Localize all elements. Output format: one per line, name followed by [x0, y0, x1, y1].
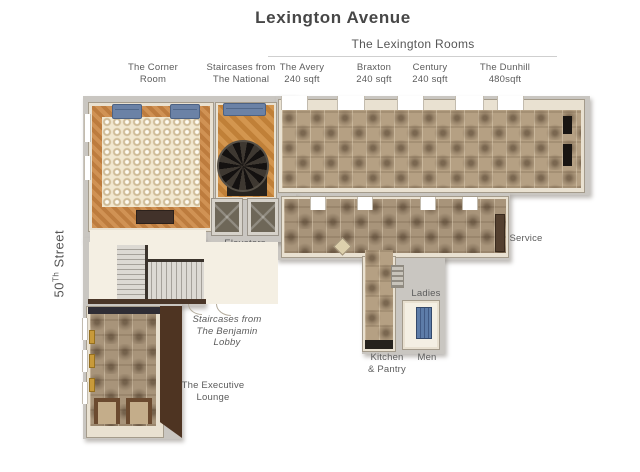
lexington-rooms-carpet: [282, 110, 581, 188]
door-opening: [563, 116, 572, 134]
booth-seat: [94, 398, 120, 424]
subtitle-underline: [268, 56, 557, 57]
executive-lounge-top-wall: [88, 307, 160, 314]
door-bay: [357, 197, 373, 210]
window-bay: [281, 96, 308, 110]
lounge-chair: [89, 330, 95, 344]
window-bay: [455, 96, 484, 110]
window-bay: [82, 350, 88, 372]
lobby-floor: [205, 242, 278, 304]
label-dunhill: The Dunhill 480sqft: [469, 62, 541, 85]
plan-subtitle: The Lexington Rooms: [268, 37, 558, 51]
staircase-flight: [117, 245, 147, 301]
label-century: Century 240 sqft: [394, 62, 466, 85]
corner-room-carpet: [102, 117, 200, 207]
door-bay: [462, 197, 478, 210]
label-service: Service: [498, 233, 554, 245]
stair-railing: [147, 259, 204, 262]
door-bay: [420, 197, 436, 210]
window-bay: [84, 114, 91, 142]
corner-room-walkway: [90, 230, 206, 242]
kitchen-corridor-end: [365, 340, 393, 349]
window-bay: [82, 382, 88, 404]
floor-plan-page: Lexington Avenue The Lexington Rooms The…: [0, 0, 640, 472]
label-staircases-benjamin: Staircases from The Benjamin Lobby: [186, 314, 268, 349]
kitchen-corridor-carpet: [365, 250, 393, 342]
sofa: [112, 104, 142, 119]
window-bay: [337, 96, 365, 110]
stair-railing: [145, 245, 148, 302]
spiral-staircase: [217, 140, 269, 192]
label-men: Men: [404, 352, 450, 364]
window-bay: [82, 318, 88, 340]
label-executive-lounge: The Executive Lounge: [176, 380, 250, 403]
elevator-shaft: [212, 199, 242, 235]
elevator-shaft: [248, 199, 278, 235]
label-ladies: Ladies: [398, 288, 454, 300]
window-bay: [397, 96, 424, 110]
street-label: 50Th Street: [51, 199, 66, 329]
window-bay: [84, 156, 91, 180]
service-station: [391, 265, 404, 288]
label-avery: The Avery 240 sqft: [266, 62, 338, 85]
door-opening: [563, 144, 572, 166]
booth-seat: [126, 398, 152, 424]
page-title: Lexington Avenue: [150, 8, 516, 28]
label-corner-room: The Corner Room: [108, 62, 198, 85]
executive-lounge-side-wall: [160, 306, 182, 438]
toilet-stalls: [416, 307, 432, 339]
sofa: [170, 104, 200, 119]
staircase-flight: [147, 262, 204, 302]
console-table: [136, 210, 174, 224]
door-bay: [310, 197, 326, 210]
lounge-chair: [89, 354, 95, 368]
sofa: [223, 103, 266, 116]
window-bay: [497, 96, 524, 110]
lounge-chair: [89, 378, 95, 392]
